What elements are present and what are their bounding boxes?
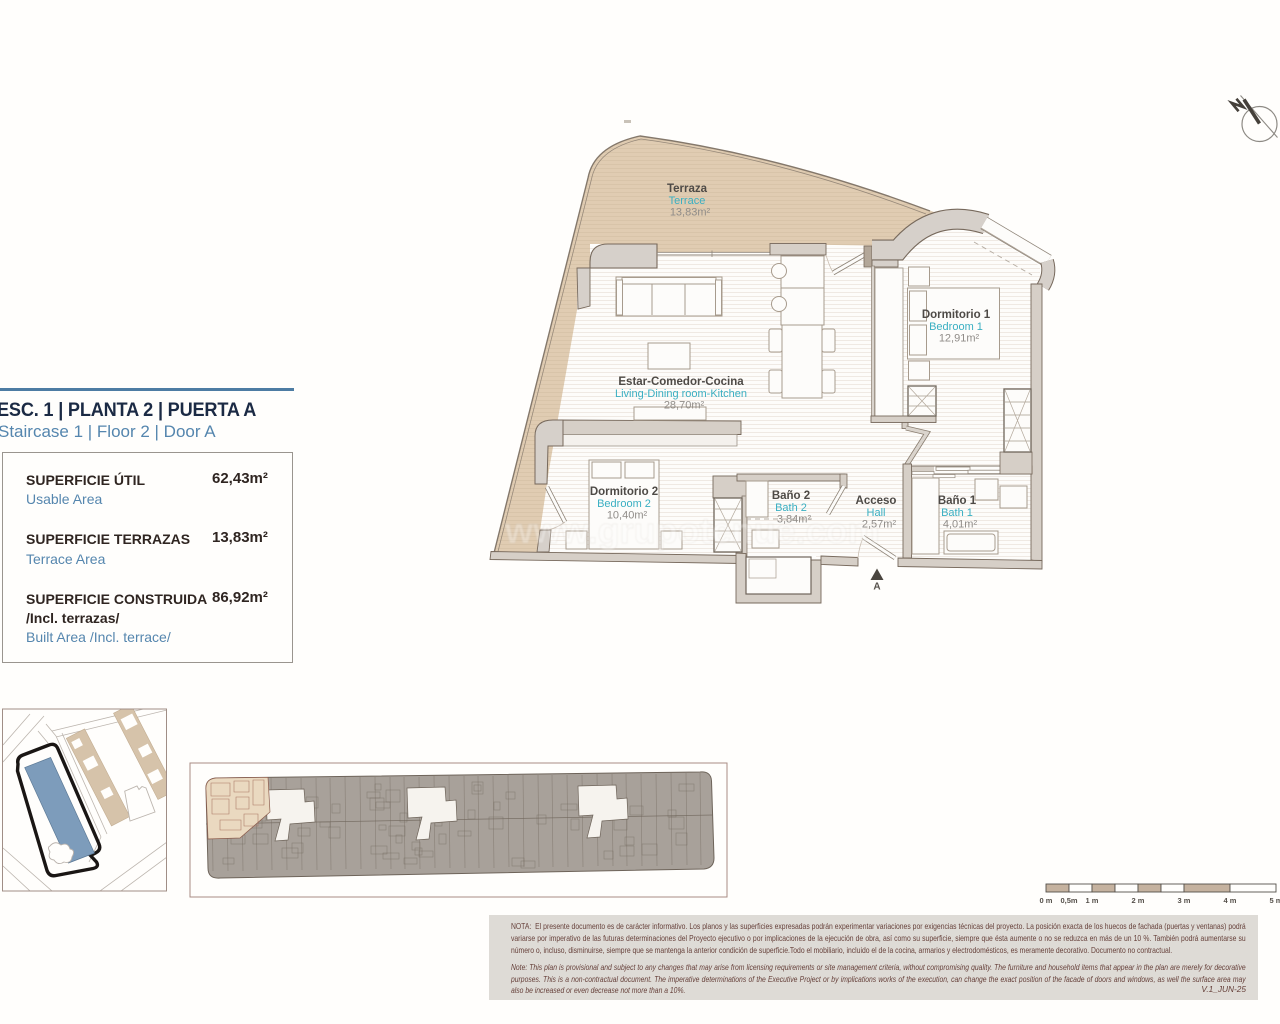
svg-text:12,91m²: 12,91m² bbox=[939, 333, 980, 345]
svg-text:Terraza: Terraza bbox=[667, 183, 708, 195]
svg-text:5 m: 5 m bbox=[1270, 896, 1280, 905]
svg-text:Bath 1: Bath 1 bbox=[941, 507, 973, 519]
svg-text:2,57m²: 2,57m² bbox=[862, 519, 897, 531]
svg-text:Living-Dining room-Kitchen: Living-Dining room-Kitchen bbox=[615, 388, 747, 400]
svg-text:0,5m: 0,5m bbox=[1060, 896, 1077, 905]
svg-text:Baño 2: Baño 2 bbox=[772, 490, 810, 502]
svg-text:www.grupotenue.com: www.grupotenue.com bbox=[504, 510, 880, 551]
svg-text:Bedroom 1: Bedroom 1 bbox=[929, 321, 983, 333]
svg-text:3 m: 3 m bbox=[1178, 896, 1191, 905]
svg-text:Bedroom 2: Bedroom 2 bbox=[597, 498, 651, 510]
svg-text:Baño 1: Baño 1 bbox=[938, 495, 977, 507]
svg-text:Estar-Comedor-Cocina: Estar-Comedor-Cocina bbox=[618, 376, 744, 388]
svg-text:Hall: Hall bbox=[867, 507, 886, 519]
svg-text:13,83m²: 13,83m² bbox=[670, 207, 711, 219]
svg-text:1 m: 1 m bbox=[1086, 896, 1099, 905]
svg-text:4,01m²: 4,01m² bbox=[943, 519, 978, 531]
svg-text:Dormitorio 1: Dormitorio 1 bbox=[922, 309, 991, 321]
svg-text:4 m: 4 m bbox=[1224, 896, 1237, 905]
svg-text:Terrace: Terrace bbox=[669, 195, 706, 207]
svg-text:2 m: 2 m bbox=[1132, 896, 1145, 905]
svg-text:0 m: 0 m bbox=[1040, 896, 1053, 905]
svg-text:10,40m²: 10,40m² bbox=[607, 510, 648, 522]
svg-text:A: A bbox=[873, 582, 880, 593]
svg-text:3,84m²: 3,84m² bbox=[777, 514, 812, 526]
svg-text:Acceso: Acceso bbox=[856, 495, 897, 507]
svg-text:28,70m²: 28,70m² bbox=[664, 400, 705, 412]
svg-text:Dormitorio 2: Dormitorio 2 bbox=[590, 486, 658, 498]
svg-text:Bath 2: Bath 2 bbox=[775, 502, 807, 514]
